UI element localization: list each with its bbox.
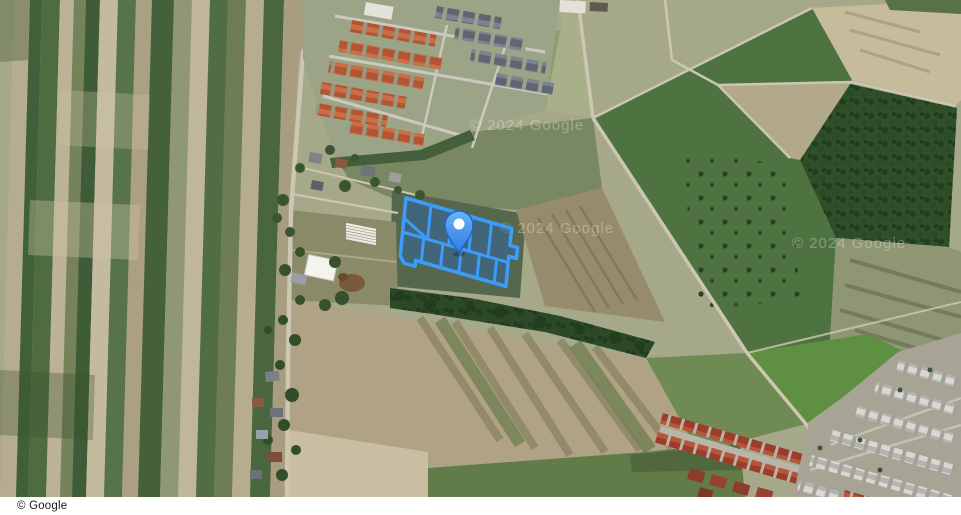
map-viewport: © 2024 Google © 2024 Google © 2024 Googl…	[0, 0, 961, 515]
watermark-text: © 2024 Google	[792, 235, 906, 252]
watermark-text: © 2024 Google	[470, 117, 584, 134]
watermark-text: © 2024 Google	[500, 220, 614, 237]
google-attribution: © Google	[0, 500, 67, 512]
attribution-bar: © Google	[0, 497, 961, 515]
satellite-map[interactable]: © 2024 Google © 2024 Google © 2024 Googl…	[0, 0, 961, 497]
pin-dot	[454, 219, 465, 230]
